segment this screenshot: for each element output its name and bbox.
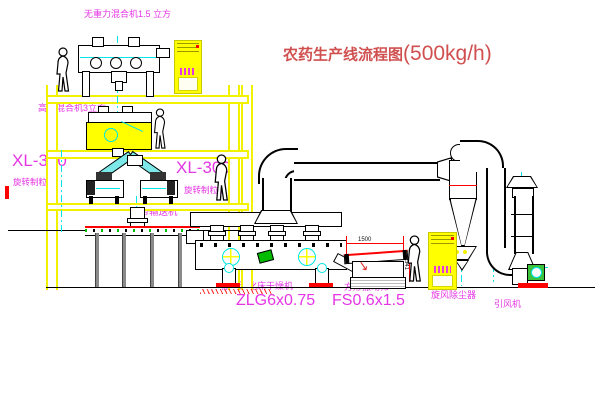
- sieve-deck-cap-left: [345, 254, 350, 263]
- cyclone-tip: [457, 261, 468, 269]
- dryer-stub-flange-4: [303, 231, 321, 236]
- cabinet-indicator-light: [451, 237, 454, 240]
- dryer-mount-right: [317, 263, 327, 273]
- top-mixer-inlet-left: [92, 37, 104, 47]
- stack-flange-1: [511, 214, 533, 215]
- fan-label: 引风机: [494, 300, 521, 309]
- cabinet-nameplate: [180, 68, 196, 75]
- hs-mixer-body: [86, 122, 152, 150]
- control-cabinet-2: [428, 232, 457, 290]
- worker-figure-1: [52, 45, 74, 95]
- downcomer-pipe: [486, 168, 506, 252]
- cabinet-nameplate: [434, 266, 451, 273]
- riser-duct: [262, 178, 292, 212]
- sieve-dim-line-top: [346, 243, 403, 244]
- top-mixer-paddle-3: [130, 57, 142, 69]
- belt-leg-2: [122, 233, 126, 287]
- granulator-foot-right: [169, 196, 173, 204]
- cyclone-discharge-dot-2: [463, 250, 467, 254]
- dryer-bolt-row: [200, 243, 342, 247]
- dryer-stub-flange-1: [208, 231, 226, 236]
- worker-figure-3: [210, 152, 233, 204]
- belt-leg-3: [150, 233, 154, 287]
- dryer-mount-left: [224, 263, 234, 273]
- worker-figure-2: [150, 106, 170, 152]
- riser-funnel: [256, 211, 297, 223]
- cabinet-indicator-light: [196, 45, 199, 48]
- granulator-left: [86, 172, 122, 204]
- granulator-hopper: [96, 172, 112, 180]
- belt-surface: [85, 229, 200, 232]
- top-mixer-discharge-stem: [115, 81, 123, 91]
- flow-diagram-canvas: 无重力混合机1.5 立方 农药生产线流程图(500kg/h) XL-300 旋转…: [0, 0, 600, 403]
- dryer-stub-flange-2: [238, 231, 256, 236]
- fan-base-pad: [518, 283, 548, 288]
- centerline-left: [61, 150, 62, 232]
- cyclone-label: 旋风除尘器: [431, 291, 476, 300]
- drop-duct-flange: [127, 218, 148, 223]
- cabinet-door-panel: [432, 275, 453, 287]
- granulator-foot-left: [89, 196, 93, 204]
- sieve-base: [350, 277, 406, 289]
- cyclone-flange-line: [449, 185, 477, 186]
- dryer-base-pad-right: [309, 283, 333, 287]
- sieve-model-label: FS0.6x1.5: [332, 293, 405, 309]
- ground-hatch: [200, 289, 272, 294]
- granulator-foot-right: [115, 196, 119, 204]
- building-floor3-slab: [46, 203, 249, 211]
- stack-flange-2: [511, 236, 533, 237]
- title-capacity: (500kg/h): [403, 42, 492, 65]
- top-mixer-inlet-right: [128, 37, 140, 47]
- cabinet-door-panel: [178, 77, 198, 91]
- top-mixer-paddle-2: [110, 57, 122, 69]
- top-mixer-paddle-1: [90, 57, 102, 69]
- top-mixer-label: 无重力混合机1.5 立方: [84, 10, 171, 19]
- building-column-left: [46, 85, 58, 290]
- granulator-foot-left: [143, 196, 147, 204]
- dryer-base-pad-left: [216, 283, 240, 287]
- dryer-crosshair-2: [298, 248, 316, 266]
- ground-line: [46, 287, 595, 288]
- granulator-hopper: [150, 172, 166, 180]
- stack-pipe: [514, 196, 534, 254]
- granulator-detail: [96, 188, 120, 189]
- chute-stem: [127, 155, 143, 166]
- granulator-drive: [167, 181, 175, 195]
- diagram-title: 农药生产线流程图(500kg/h): [283, 42, 492, 66]
- fan-motor-shaft: [531, 267, 542, 278]
- dryer-model-label: ZLG6x0.75: [236, 293, 315, 309]
- granulator-detail: [142, 188, 166, 189]
- belt-leg-4: [178, 233, 182, 287]
- top-mixer-leg-right: [146, 71, 154, 97]
- overhead-duct: [294, 162, 440, 181]
- red-marker: [5, 186, 9, 199]
- top-mixer-motor-stub: [156, 48, 170, 58]
- dryer-stub-flange-3: [268, 231, 286, 236]
- hs-mixer-impeller: [104, 128, 118, 142]
- granulator-drive: [87, 181, 95, 195]
- belt-conveyor: [85, 226, 200, 236]
- title-text: 农药生产线流程图: [283, 47, 403, 64]
- top-mixer-leg-left: [82, 71, 90, 97]
- control-cabinet-1: [174, 40, 202, 94]
- belt-leg-1: [95, 233, 99, 287]
- granulator-right: [140, 172, 176, 204]
- worker-figure-4: [403, 233, 426, 285]
